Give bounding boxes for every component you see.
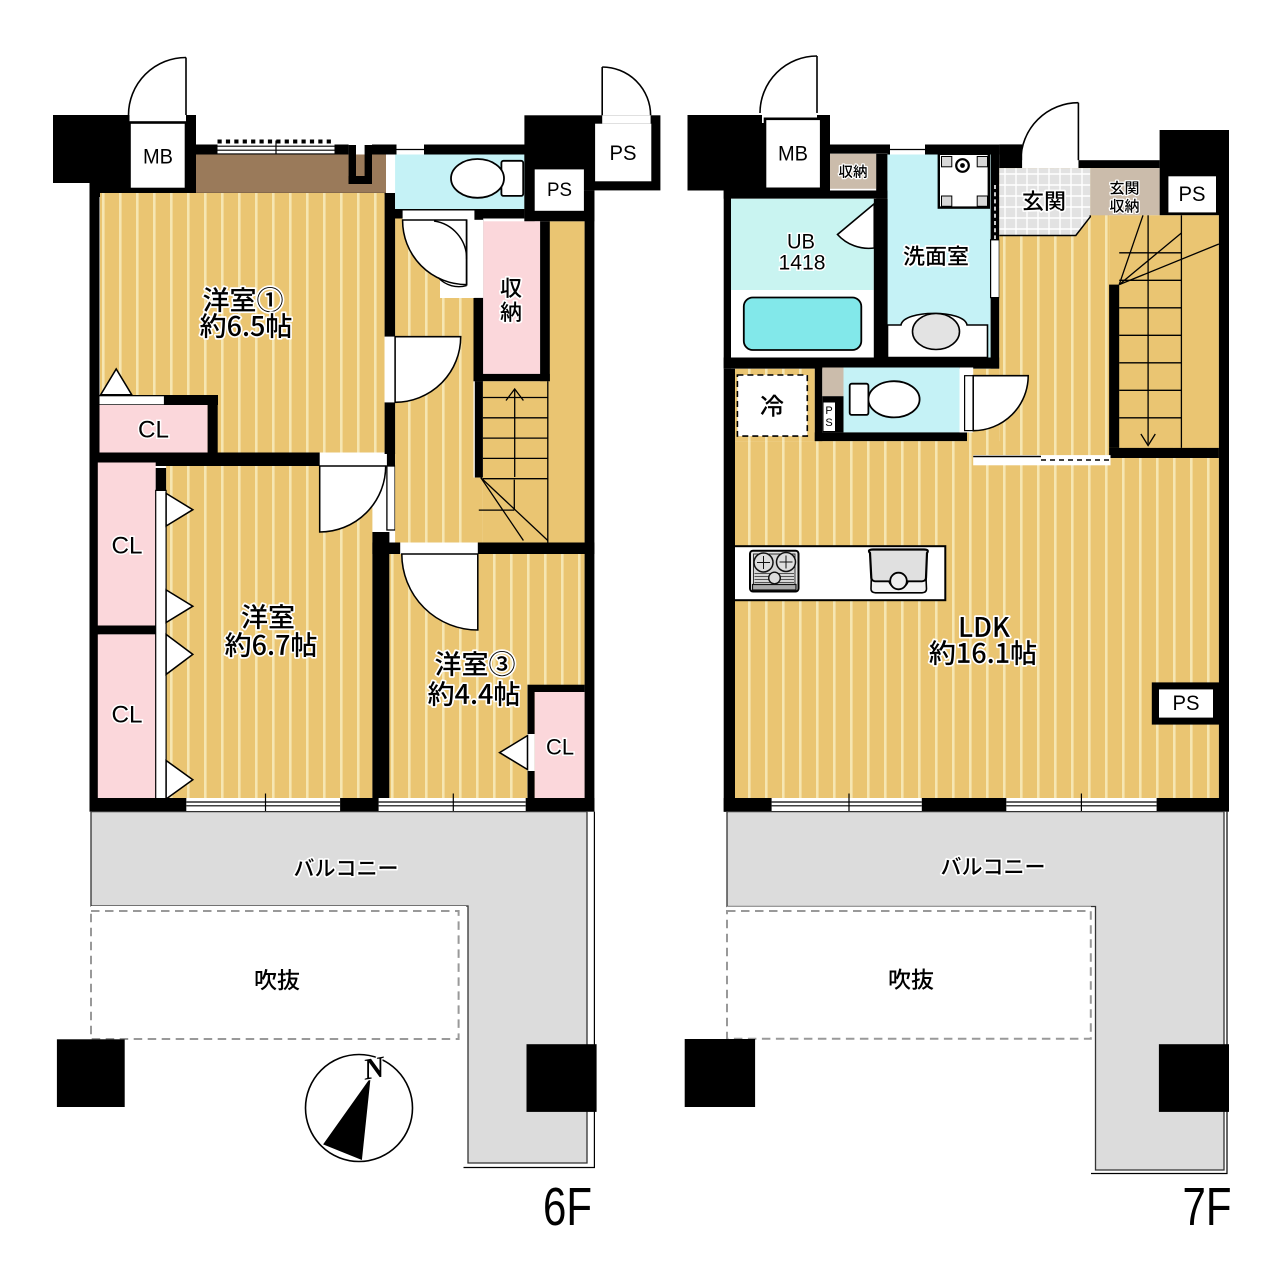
svg-text:1418: 1418 <box>779 252 826 275</box>
svg-text:CL: CL <box>112 702 143 729</box>
svg-text:PS: PS <box>610 142 637 165</box>
svg-text:MB: MB <box>143 146 173 169</box>
svg-text:PS: PS <box>1179 183 1206 206</box>
svg-text:CL: CL <box>112 533 143 560</box>
svg-text:7F: 7F <box>1183 1177 1232 1237</box>
svg-text:CL: CL <box>138 417 169 444</box>
svg-text:PS: PS <box>1173 692 1200 715</box>
svg-text:P: P <box>825 405 832 417</box>
svg-text:CL: CL <box>546 735 574 760</box>
svg-text:MB: MB <box>778 143 808 166</box>
svg-text:UB: UB <box>787 231 815 254</box>
svg-text:PS: PS <box>547 180 572 201</box>
svg-text:S: S <box>825 417 832 429</box>
svg-text:6F: 6F <box>543 1177 592 1237</box>
